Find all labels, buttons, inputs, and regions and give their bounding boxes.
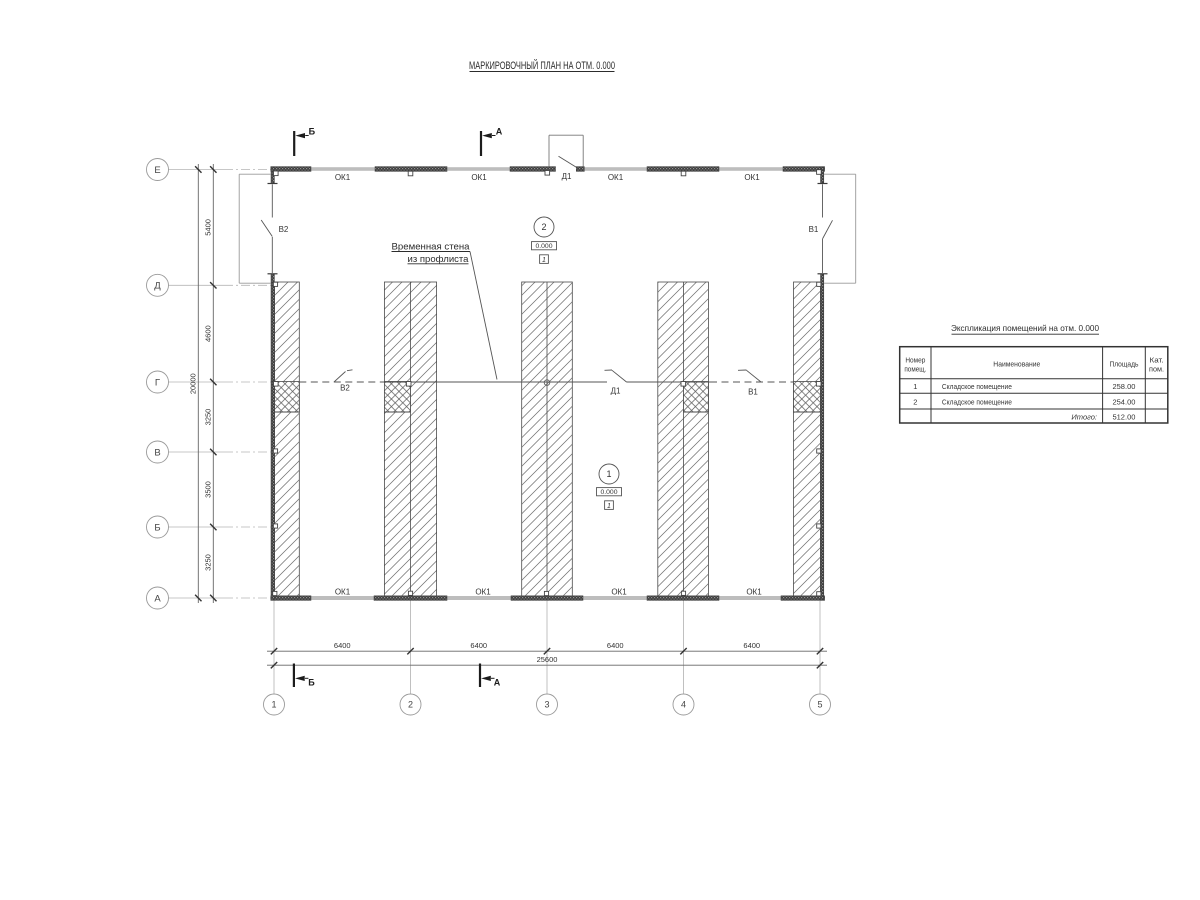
svg-text:А: А bbox=[494, 678, 501, 688]
svg-text:ОК1: ОК1 bbox=[471, 173, 487, 182]
svg-text:Экспликация помещений на отм.: Экспликация помещений на отм. 0.000 bbox=[951, 323, 1099, 333]
svg-text:ОК1: ОК1 bbox=[335, 173, 351, 182]
svg-text:МАРКИРОВОЧНЫЙ ПЛАН НА ОТМ. 0.0: МАРКИРОВОЧНЫЙ ПЛАН НА ОТМ. 0.000 bbox=[469, 59, 615, 72]
svg-text:В2: В2 bbox=[279, 225, 289, 234]
svg-text:В2: В2 bbox=[340, 384, 350, 393]
svg-text:512.00: 512.00 bbox=[1112, 413, 1135, 422]
svg-text:0.000: 0.000 bbox=[600, 489, 617, 496]
svg-text:пом.: пом. bbox=[1149, 367, 1164, 374]
svg-text:Д: Д bbox=[154, 281, 161, 292]
svg-text:Кат.: Кат. bbox=[1150, 358, 1164, 365]
svg-text:6400: 6400 bbox=[334, 641, 351, 650]
svg-text:В1: В1 bbox=[809, 225, 819, 234]
svg-text:5400: 5400 bbox=[204, 219, 213, 236]
svg-text:Д1: Д1 bbox=[611, 387, 621, 396]
svg-text:Складское помещение: Складское помещение bbox=[942, 398, 1012, 407]
svg-text:4: 4 bbox=[681, 700, 686, 710]
svg-text:6400: 6400 bbox=[743, 641, 760, 650]
svg-text:Е: Е bbox=[154, 165, 160, 176]
svg-text:1: 1 bbox=[271, 700, 276, 710]
svg-text:2: 2 bbox=[913, 398, 917, 407]
svg-text:В: В bbox=[154, 447, 160, 458]
svg-text:1: 1 bbox=[542, 257, 546, 264]
svg-text:А: А bbox=[496, 127, 503, 137]
svg-text:0.000: 0.000 bbox=[535, 243, 552, 250]
svg-text:А: А bbox=[154, 593, 161, 604]
svg-text:из профлиста: из профлиста bbox=[408, 254, 469, 264]
svg-text:6400: 6400 bbox=[470, 641, 487, 650]
svg-text:Временная стена: Временная стена bbox=[392, 242, 470, 252]
svg-text:Номер: Номер bbox=[905, 358, 925, 365]
svg-text:3250: 3250 bbox=[204, 554, 213, 571]
svg-text:Складское помещение: Складское помещение bbox=[942, 382, 1012, 391]
svg-text:Б: Б bbox=[154, 522, 160, 533]
svg-text:5: 5 bbox=[817, 700, 822, 710]
svg-text:2: 2 bbox=[408, 700, 413, 710]
svg-text:3250: 3250 bbox=[204, 409, 213, 426]
svg-text:3: 3 bbox=[544, 700, 549, 710]
svg-text:4600: 4600 bbox=[204, 325, 213, 342]
svg-text:Б: Б bbox=[308, 678, 315, 688]
svg-text:20000: 20000 bbox=[189, 373, 198, 394]
svg-text:1: 1 bbox=[606, 469, 611, 479]
svg-text:ОК1: ОК1 bbox=[475, 588, 491, 597]
svg-text:258.00: 258.00 bbox=[1112, 382, 1135, 391]
svg-text:3500: 3500 bbox=[204, 481, 213, 498]
svg-text:Площадь: Площадь bbox=[1109, 360, 1138, 369]
svg-text:ОК1: ОК1 bbox=[744, 173, 760, 182]
svg-text:254.00: 254.00 bbox=[1112, 398, 1135, 407]
svg-text:Итого:: Итого: bbox=[1071, 413, 1097, 422]
svg-text:1: 1 bbox=[607, 503, 611, 510]
svg-text:1: 1 bbox=[913, 382, 917, 391]
svg-text:ОК1: ОК1 bbox=[608, 173, 624, 182]
svg-text:ОК1: ОК1 bbox=[335, 588, 351, 597]
svg-text:Г: Г bbox=[155, 377, 160, 388]
svg-text:помещ.: помещ. bbox=[904, 367, 926, 374]
svg-text:Наименование: Наименование bbox=[993, 360, 1040, 369]
svg-text:В1: В1 bbox=[748, 388, 758, 397]
svg-text:6400: 6400 bbox=[607, 641, 624, 650]
svg-text:Б: Б bbox=[309, 127, 316, 137]
svg-text:2: 2 bbox=[541, 222, 546, 232]
svg-text:25600: 25600 bbox=[537, 655, 558, 664]
svg-text:Д1: Д1 bbox=[562, 172, 572, 181]
svg-text:ОК1: ОК1 bbox=[611, 588, 627, 597]
svg-text:ОК1: ОК1 bbox=[746, 588, 762, 597]
